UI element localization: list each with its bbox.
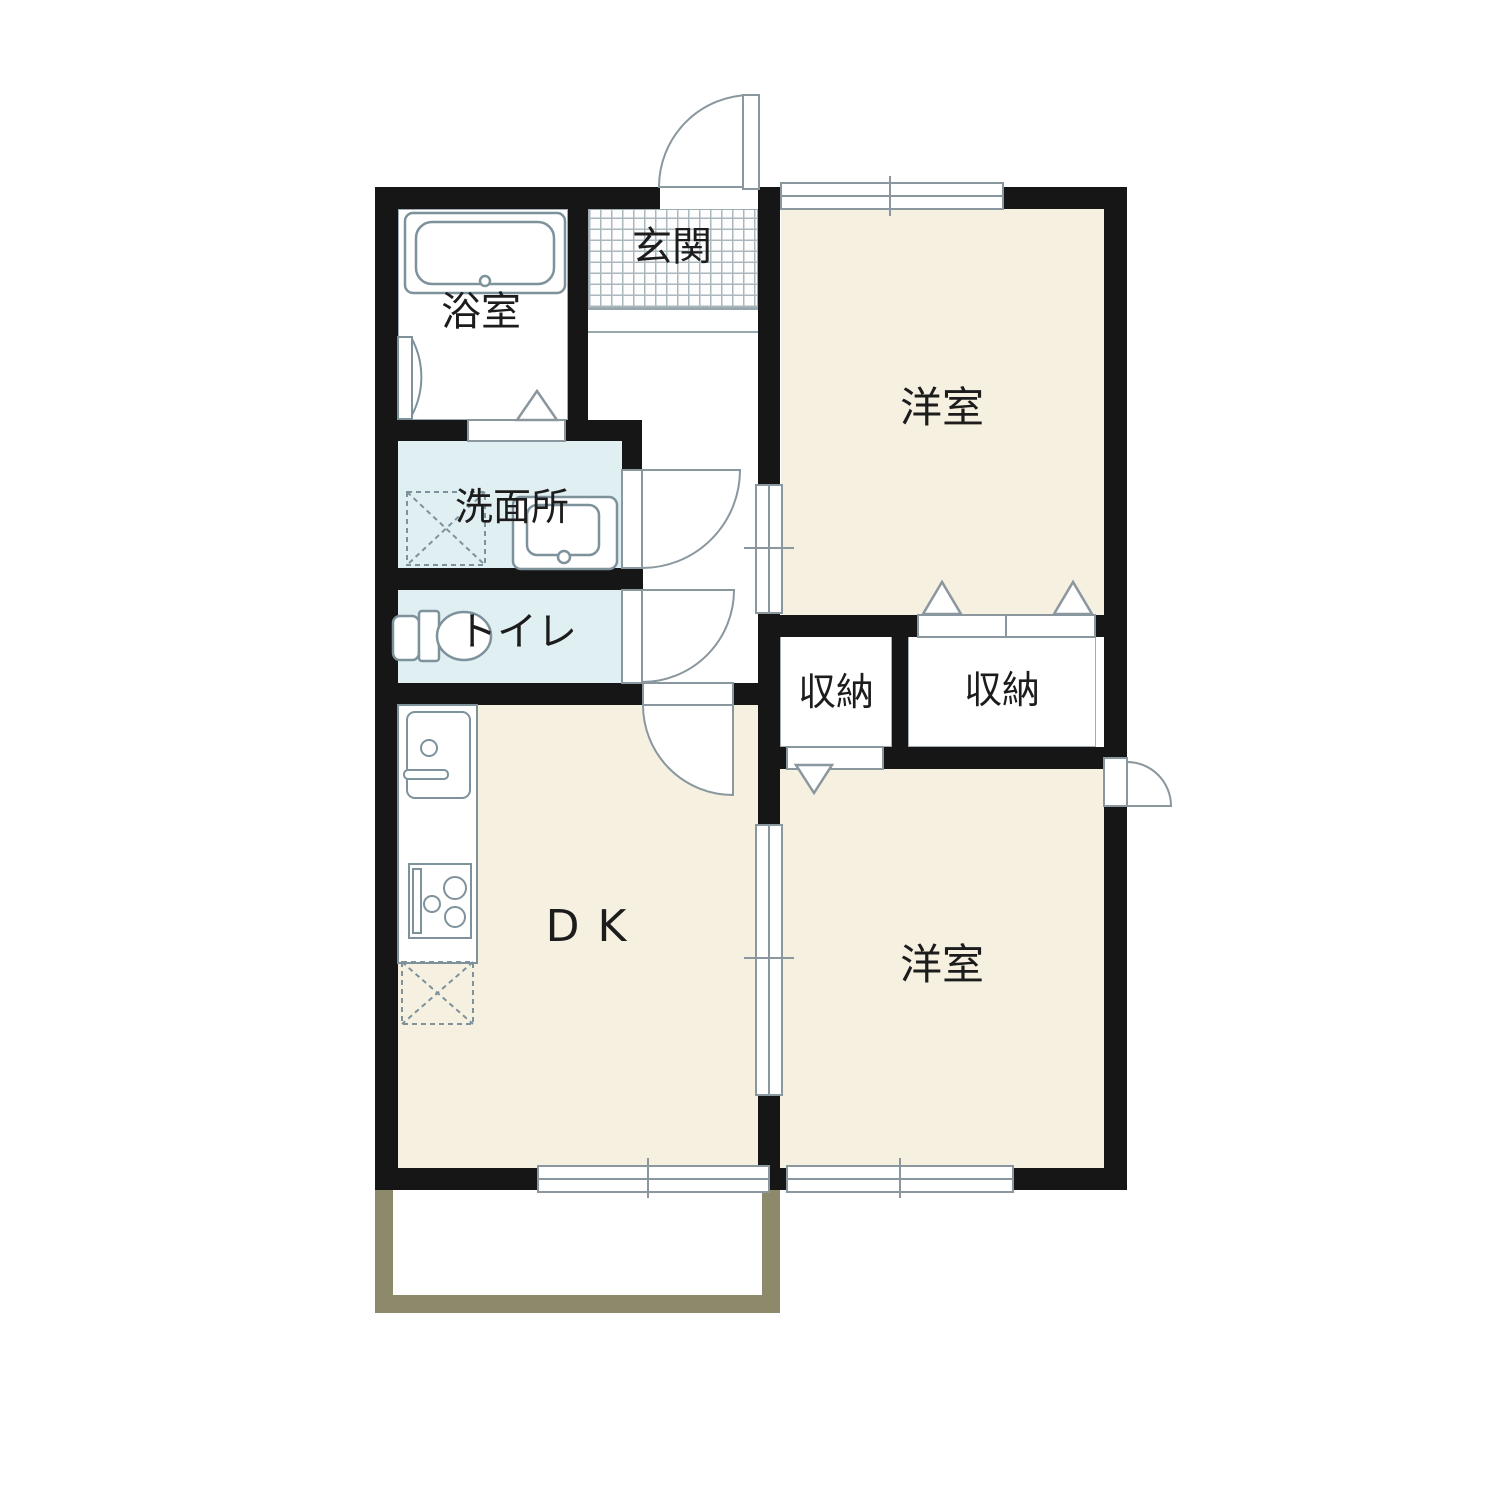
door-triangles [517,391,1092,793]
closet-small-door-triangle [796,765,832,793]
window-bottom-western [787,1158,1013,1198]
western-room-lower-label: 洋室 [842,942,1042,988]
floorplan-canvas: 玄関 浴室 洗面所 トイレ DK 洋室 洋室 収納 収納 [0,0,1500,1500]
bath-door-panel-icon [398,337,421,419]
genkan-label: 玄関 [592,225,752,269]
dk-door-arc [643,705,733,795]
washroom-door-arc [642,470,740,568]
closet-large-door-triangle-1 [923,582,961,614]
closet-small-label: 収納 [780,672,892,714]
toilet-label: トイレ [412,610,622,654]
washroom-door-band [622,470,642,568]
closet-large-label: 収納 [902,670,1102,712]
toilet-door-arc [642,590,734,682]
window-bottom-dk [538,1158,769,1198]
dining-kitchen-label: DK [477,903,695,951]
entrance-door-arc [659,95,751,187]
bathtub-icon [405,213,565,293]
sliding-door-western-upper-entry [744,485,794,613]
exterior-door-leaf [1104,758,1127,806]
bathroom-door-triangle [517,391,557,420]
bathroom-door-band [468,420,565,441]
entrance-opening [660,188,758,208]
refrigerator-space-icon [402,962,473,1024]
exterior-door-arc [1127,762,1171,806]
sliding-door-dk-western-lower [744,825,794,1095]
western-room-upper-label: 洋室 [842,385,1042,431]
toilet-door-band [622,590,642,683]
entrance-door-leaf [743,95,759,189]
dk-door-band [643,683,733,705]
closet-large-door-triangle-2 [1054,582,1092,614]
washroom-label: 洗面所 [400,487,624,529]
bathroom-label: 浴室 [395,290,567,334]
window-top [781,176,1003,216]
